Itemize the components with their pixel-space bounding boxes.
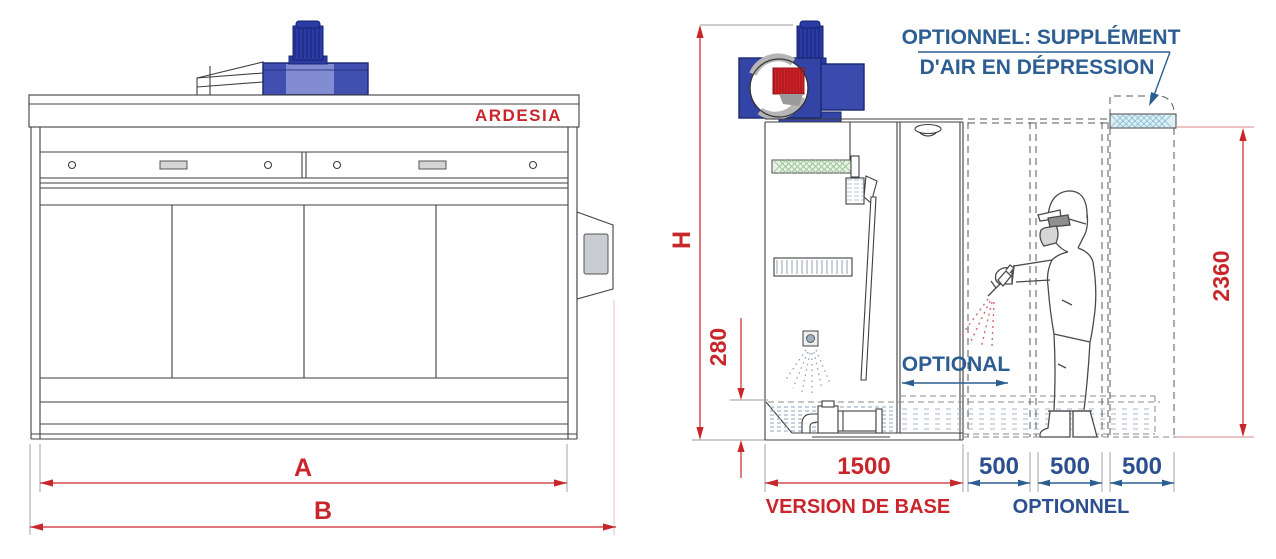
dim-500-3-label: 500: [1122, 453, 1162, 480]
torso-back: [1078, 248, 1096, 342]
optional-modules: [963, 96, 1250, 437]
screw: [334, 162, 341, 169]
legs: [1054, 334, 1090, 410]
dim-500-1-label: 500: [979, 453, 1019, 480]
leader-arrowhead: [1149, 92, 1159, 106]
booth-cabinet-front: ARDESIA: [29, 95, 613, 439]
air-inlet-strip: [1110, 114, 1176, 128]
screw: [530, 162, 537, 169]
dimension-1500: 1500: [765, 444, 963, 492]
screw: [69, 162, 76, 169]
fan-inlet-plate: [739, 57, 821, 118]
dimension-optional-span: OPTIONAL: [902, 353, 1011, 386]
depression-air-note: OPTIONNEL: SUPPLÉMENT D'AIR EN DÉPRESSIO…: [902, 26, 1181, 106]
door-panels: [172, 205, 436, 378]
boot-back: [1073, 411, 1097, 437]
base-version-caption: VERSION DE BASE: [766, 496, 950, 518]
dimension-280: 280: [705, 318, 768, 478]
baffle: [861, 197, 876, 380]
handle: [160, 161, 187, 169]
booth-body-side: [765, 119, 1160, 440]
water-spray: [784, 350, 830, 393]
sash-row: [69, 152, 537, 178]
front-view: ARDESIA: [29, 21, 616, 535]
dim-280-label: 280: [705, 328, 731, 366]
arm: [1012, 260, 1052, 284]
dimension-B: B: [30, 300, 616, 535]
boot-front: [1040, 411, 1070, 437]
exhaust-duct: [197, 62, 263, 95]
dim-2360-label: 2360: [1208, 250, 1234, 301]
fan-unit-side: [739, 21, 864, 122]
fan-unit-front: [263, 21, 368, 95]
paint-spray: [961, 299, 994, 348]
dim-H-label: H: [668, 231, 696, 249]
pump: [802, 401, 890, 437]
dimension-A: A: [40, 444, 567, 492]
dim-1500-label: 1500: [837, 453, 890, 480]
note-line-2: D'AIR EN DÉPRESSION: [920, 56, 1155, 79]
paint-stop-filter: [772, 156, 859, 177]
dim-500-2-label: 500: [1050, 453, 1090, 480]
spray-gun: [961, 265, 1014, 348]
dimension-2360: 2360: [1177, 127, 1254, 437]
motor-front: [293, 21, 323, 60]
control-panel-screen: [584, 234, 608, 274]
respirator-mask: [1040, 226, 1058, 246]
dim-A-label: A: [294, 454, 312, 482]
handle: [419, 161, 446, 169]
operator-figure: [996, 191, 1098, 437]
note-line-1: OPTIONNEL: SUPPLÉMENT: [902, 26, 1181, 49]
spray-booth-drawing: ARDESIA: [0, 0, 1276, 559]
control-box: [577, 212, 613, 299]
wash-nozzle: [784, 331, 830, 393]
optional-span-label: OPTIONAL: [902, 353, 1011, 376]
brand-label: ARDESIA: [475, 106, 562, 125]
lower-filter: [774, 258, 852, 276]
screw: [265, 162, 272, 169]
ceiling-light: [915, 125, 941, 137]
technical-drawing-page: ARDESIA: [0, 0, 1276, 559]
torso-front: [1048, 260, 1055, 334]
side-view: H: [668, 21, 1254, 518]
optional-caption: OPTIONNEL: [1013, 496, 1130, 518]
dimension-500-modules: 500 500 500: [968, 452, 1174, 492]
dim-B-label: B: [314, 497, 332, 525]
bottom-captions: VERSION DE BASE OPTIONNEL: [766, 496, 1130, 518]
